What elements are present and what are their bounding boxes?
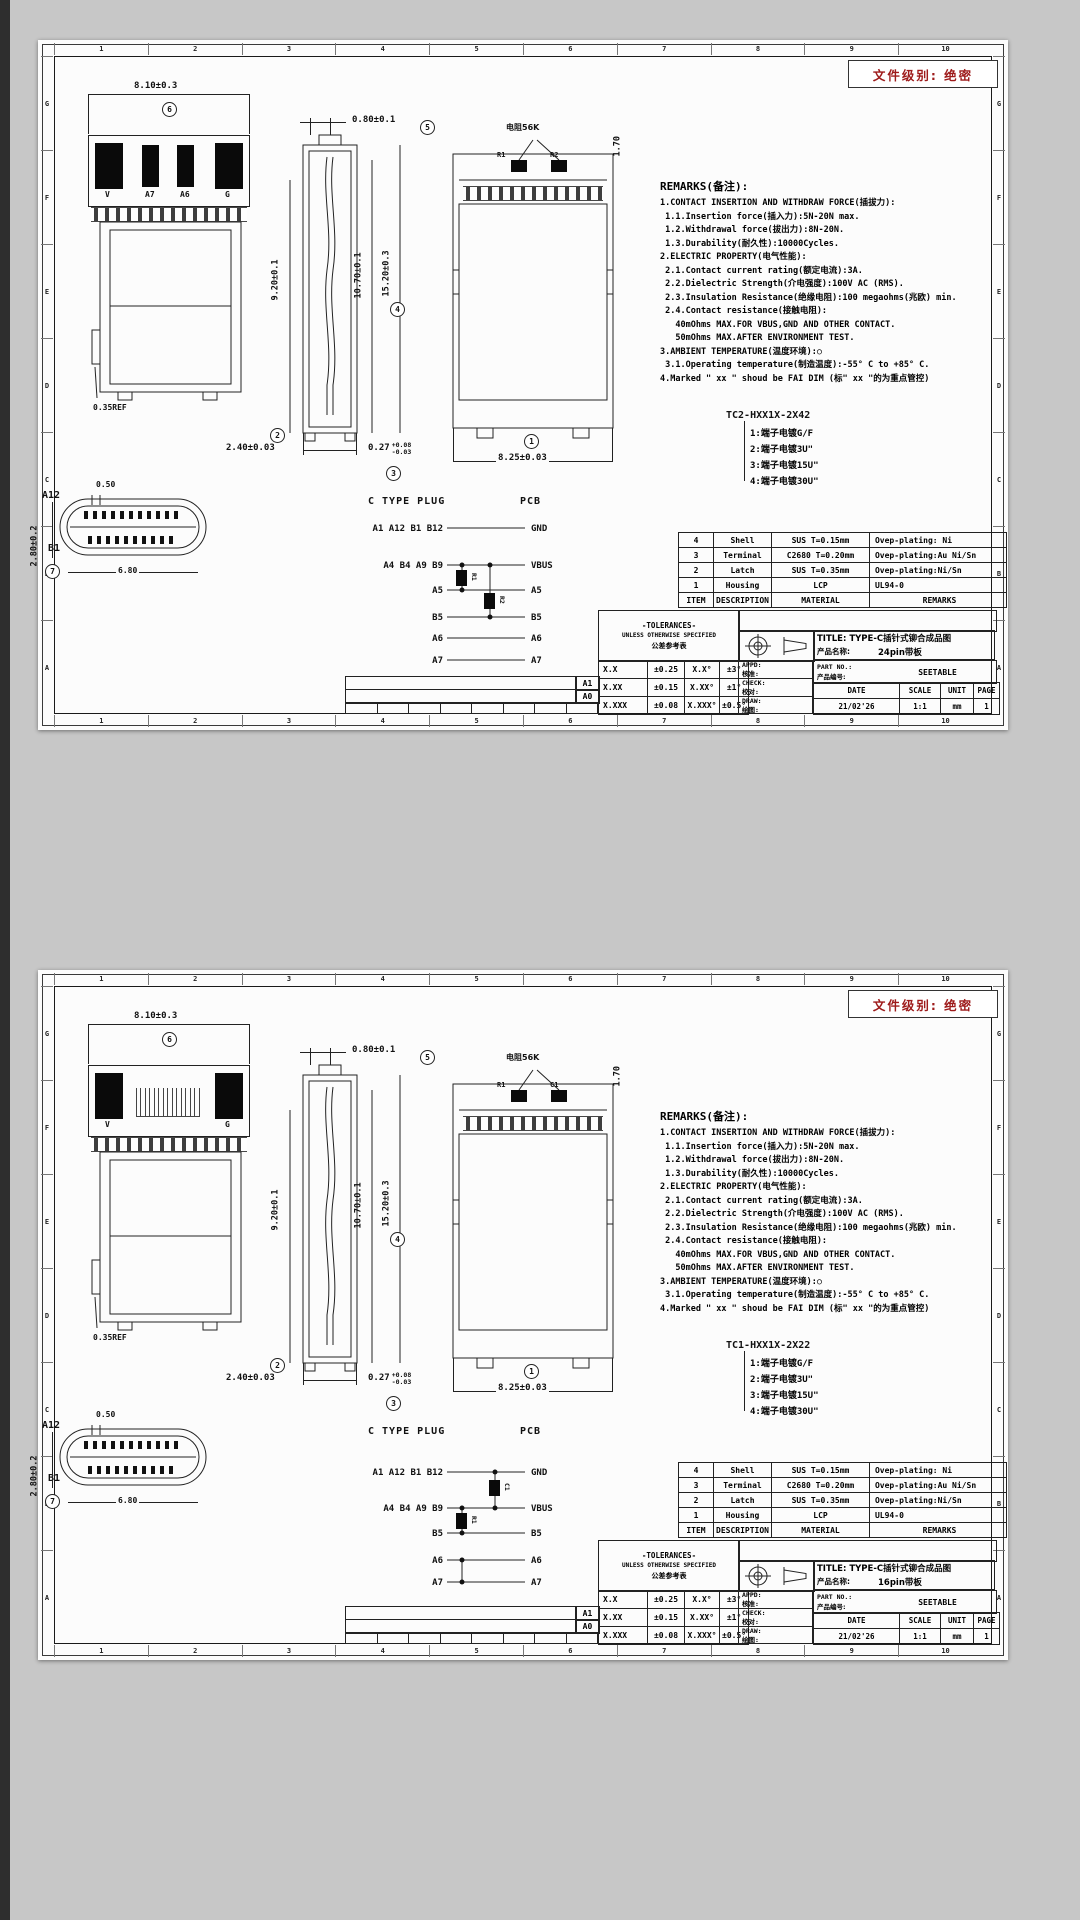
remark-line: 1.2.Withdrawal force(拔出力):8N-20N. <box>660 224 1000 238</box>
part-no-value: SEETABLE <box>879 668 996 677</box>
bom-cell: Ovep-plating:Ni/Sn <box>869 563 1006 578</box>
ext-line <box>612 1358 613 1392</box>
circuit-net: A6 <box>531 1556 542 1566</box>
ext-line <box>612 428 613 462</box>
front-mid-teeth <box>136 1088 200 1117</box>
bom-row: 3TerminalC2680 T=0.20mmOvep-plating:Au N… <box>679 1478 1007 1493</box>
tolerance-table: X.X±0.25X.X°±3° X.XX±0.15X.XX°±1° X.XXX±… <box>598 660 749 715</box>
bom-cell: Housing <box>714 578 772 593</box>
circuit-pin-group: A5 <box>432 586 443 596</box>
bom-cell: 2 <box>679 1493 714 1508</box>
circuit-pin-group: A1 A12 B1 B12 <box>373 524 443 534</box>
bom-header-cell: REMARKS <box>869 1523 1006 1538</box>
plating-option: 2:端子电镀3U" <box>750 1372 819 1388</box>
third-angle-projection-icon <box>742 1563 812 1589</box>
bom-header-cell: DESCRIPTION <box>714 1523 772 1538</box>
remark-line: 2.ELECTRIC PROPERTY(电气性能): <box>660 1181 1000 1195</box>
dsh-cell: DATE <box>814 1613 900 1629</box>
dim-width-8-10: 8.10±0.3 <box>134 1012 177 1022</box>
chip2-label: R2 <box>550 152 558 160</box>
dim-825: 8.25±0.03 <box>496 1384 549 1394</box>
grid-col-label: 2 <box>148 715 242 727</box>
remark-line: 4.Marked " xx " shoud be FAI DIM (标" xx … <box>660 1303 1000 1317</box>
dim-240: 2.40±0.03 <box>226 1374 275 1384</box>
bom-cell: SUS T=0.15mm <box>771 533 869 548</box>
grid-column-labels-top: 12345678910 <box>54 43 992 55</box>
bom-cell: 3 <box>679 548 714 563</box>
dim-280: 2.80±0.2 <box>31 526 40 567</box>
signature-label-cn: 绘图: <box>742 1636 812 1645</box>
bom-cell: LCP <box>771 1508 869 1523</box>
remark-line: 1.1.Insertion force(插入力):5N-20N max. <box>660 211 1000 225</box>
grid-row-labels-left: GFEDCBA <box>41 56 53 714</box>
signature-column: APPD:核准:CHECK:校对:DRAW:绘图: <box>738 1590 813 1644</box>
dim-line <box>300 122 346 123</box>
dim-050: 0.50 <box>96 481 115 490</box>
bom-row: 1HousingLCPUL94-0 <box>679 578 1007 593</box>
grid-col-label: 10 <box>898 973 992 985</box>
revision-a1: A1 <box>583 1609 593 1618</box>
pad-label: A6 <box>180 191 190 200</box>
plating-bracket <box>744 1351 745 1411</box>
circuit-net: VBUS <box>531 1504 553 1514</box>
circuit-diagram-16pin: A1 A12 B1 B12 A4 B4 A9 B9 B5 A6 A7 GND V… <box>363 1422 583 1612</box>
plating-option: 4:端子电镀30U" <box>750 1404 819 1420</box>
drawing-title: TITLE: TYPE-C插针式铆合成品图 <box>817 1562 991 1574</box>
ext-line <box>88 1024 89 1064</box>
dsh-cell: UNIT <box>941 683 974 699</box>
grid-row-label: A <box>41 620 53 714</box>
product-name-label: 产品名称: <box>817 1576 850 1588</box>
signature-column: APPD:核准:CHECK:校对:DRAW:绘图: <box>738 660 813 714</box>
balloon-7: 7 <box>45 1494 60 1509</box>
dim-line <box>52 502 53 558</box>
part-no-cell: PART NO.: 产品编号: SEETABLE <box>813 1590 997 1614</box>
part-no-label: PART NO.: <box>817 663 879 671</box>
front-pad-a7 <box>142 145 159 187</box>
balloon-1: 1 <box>524 1364 539 1379</box>
part-no-value: SEETABLE <box>879 1598 996 1607</box>
remark-line: 2.3.Insulation Resistance(绝缘电阻):100 mega… <box>660 292 1000 306</box>
remark-line: 1.2.Withdrawal force(拔出力):8N-20N. <box>660 1154 1000 1168</box>
grid-column-labels-top: 12345678910 <box>54 973 992 985</box>
grid-col-label: 4 <box>335 715 429 727</box>
grid-col-label: 1 <box>54 43 148 55</box>
title-top-strip <box>738 610 997 632</box>
plating-option: 3:端子电镀15U" <box>750 1388 819 1404</box>
dim-ref-035: 0.35REF <box>93 404 127 413</box>
product-name-value: 16pin带板 <box>878 1576 922 1588</box>
tolerances-title: -TOLERANCES- <box>642 621 696 630</box>
grid-col-label: 5 <box>429 973 523 985</box>
bom-row: 3TerminalC2680 T=0.20mmOvep-plating:Au N… <box>679 548 1007 563</box>
plating-bracket <box>744 421 745 481</box>
balloon-4: 4 <box>390 302 405 317</box>
grid-row-label: F <box>41 1080 53 1174</box>
circuit-pin-group: A6 <box>432 1556 443 1566</box>
tol-cell: X.XXX <box>599 1627 648 1645</box>
bom-table: 4ShellSUS T=0.15mmOvep-plating: Ni 3Term… <box>678 532 1007 608</box>
drawing-title: TITLE: TYPE-C插针式铆合成品图 <box>817 632 991 644</box>
balloon-5: 5 <box>420 120 435 135</box>
dim-280: 2.80±0.2 <box>31 1456 40 1497</box>
bom-row: 2LatchSUS T=0.35mmOvep-plating:Ni/Sn <box>679 1493 1007 1508</box>
revision-header-cells <box>345 702 598 714</box>
dim-080: 0.80±0.1 <box>352 116 395 126</box>
grid-col-label: 6 <box>523 43 617 55</box>
remark-line: 50mOhms MAX.AFTER ENVIRONMENT TEST. <box>660 332 1000 346</box>
grid-col-label: 3 <box>242 973 336 985</box>
circuit-net: A6 <box>531 634 542 644</box>
bom-cell: SUS T=0.15mm <box>771 1463 869 1478</box>
pad-label: V <box>105 1121 110 1130</box>
bom-header-row: ITEMDESCRIPTIONMATERIALREMARKS <box>679 593 1007 608</box>
part-no-label-cn: 产品编号: <box>817 671 879 681</box>
tolerances-subtitle-cn: 公差参考表 <box>652 641 687 651</box>
bom-row: 2LatchSUS T=0.35mmOvep-plating:Ni/Sn <box>679 563 1007 578</box>
tol-cell: ±0.08 <box>648 697 685 715</box>
balloon-6: 6 <box>162 102 177 117</box>
bom-cell: Ovep-plating:Au Ni/Sn <box>869 548 1006 563</box>
dsh-row: DATESCALEUNITPAGE <box>814 683 1000 699</box>
grid-col-label: 6 <box>523 973 617 985</box>
bom-cell: Latch <box>714 1493 772 1508</box>
bom-header-cell: REMARKS <box>869 593 1006 608</box>
remark-line: 2.1.Contact current rating(额定电流):3A. <box>660 265 1000 279</box>
remark-line: 2.2.Dielectric Strength(介电强度):100V AC (R… <box>660 278 1000 292</box>
remark-line: 40mOhms MAX.FOR VBUS,GND AND OTHER CONTA… <box>660 319 1000 333</box>
front-pad-v <box>95 1073 123 1119</box>
dsh-row: DATESCALEUNITPAGE <box>814 1613 1000 1629</box>
date-scale-values: 21/02'261:1mm1 <box>813 698 1000 715</box>
resistor-callout: 电阻56K <box>506 124 539 133</box>
circuit-net: B5 <box>531 1529 542 1539</box>
grid-row-labels-left: GFEDCBA <box>41 986 53 1644</box>
tol-cell: ±0.25 <box>648 1591 685 1609</box>
dim-027-tol-dn: -0.03 <box>392 449 412 456</box>
signature-label-cn: 绘图: <box>742 706 812 715</box>
grid-col-label: 7 <box>617 1645 711 1657</box>
revision-header-cells <box>345 1632 598 1644</box>
tolerance-header-box: -TOLERANCES- UNLESS OTHERWISE SPECIFIED … <box>598 1540 740 1592</box>
signature-row: DRAW:绘图: <box>739 1627 812 1645</box>
dsv-cell: 1 <box>974 1629 1000 1645</box>
remark-line: 3.AMBIENT TEMPERATURE(温度环境):○ <box>660 1276 1000 1290</box>
dim-170: 1.70 <box>614 136 623 156</box>
circuit-net: GND <box>531 524 548 534</box>
circuit-pin-group: A1 A12 B1 B12 <box>373 1468 443 1478</box>
bom-cell: C2680 T=0.20mm <box>771 1478 869 1493</box>
remarks-title: REMARKS(备注): <box>660 1108 1000 1124</box>
dsv-row: 21/02'261:1mm1 <box>814 699 1000 715</box>
pad-label: G <box>225 1121 230 1130</box>
part-no-label-cn: 产品编号: <box>817 1601 879 1611</box>
dim-027-value: 0.27 <box>368 444 390 454</box>
dim-680: 6.80 <box>116 1497 139 1506</box>
grid-col-label: 6 <box>523 1645 617 1657</box>
signature-label-en: CHECK: <box>742 679 812 688</box>
classification-label: 文件级别: 绝密 <box>873 65 973 84</box>
grid-row-label: C <box>993 432 1005 526</box>
title-cell: TITLE: TYPE-C插针式铆合成品图 产品名称: 16pin带板 <box>813 1560 995 1590</box>
grid-row-label: D <box>41 1268 53 1362</box>
dsv-cell: 1 <box>974 699 1000 715</box>
projection-symbol-cell <box>738 1560 815 1592</box>
grid-row-label: D <box>41 338 53 432</box>
dsh-cell: PAGE <box>974 683 1000 699</box>
dim-1070: 10.70±0.1 <box>355 252 364 298</box>
circuit-net: B5 <box>531 613 542 623</box>
dim-1070: 10.70±0.1 <box>355 1182 364 1228</box>
front-pad-a6 <box>177 145 194 187</box>
tolerances-title: -TOLERANCES- <box>642 1551 696 1560</box>
tol-cell: X.X° <box>685 1591 720 1609</box>
dim-027-tol-dn: -0.03 <box>392 1379 412 1386</box>
revision-a0: A0 <box>583 692 593 701</box>
tol-cell: X.XXX <box>599 697 648 715</box>
revision-strip <box>345 676 577 704</box>
circuit-net: VBUS <box>531 561 553 571</box>
tolerances-subtitle-cn: 公差参考表 <box>652 1571 687 1581</box>
dim-1520: 15.20±0.3 <box>383 1180 392 1226</box>
grid-row-label: C <box>993 1362 1005 1456</box>
bom-cell: Shell <box>714 533 772 548</box>
bom-cell: Ovep-plating:Au Ni/Sn <box>869 1478 1006 1493</box>
signature-label-cn: 校对: <box>742 1618 812 1627</box>
circuit-comp2-label: R1 <box>470 1516 478 1524</box>
dsv-row: 21/02'261:1mm1 <box>814 1629 1000 1645</box>
grid-col-label: 5 <box>429 43 523 55</box>
pcb-teeth <box>463 186 603 201</box>
grid-col-label: 1 <box>54 715 148 727</box>
dim-027: 0.27+0.08-0.03 <box>368 442 411 456</box>
dim-240: 2.40±0.03 <box>226 444 275 454</box>
bom-cell: SUS T=0.35mm <box>771 563 869 578</box>
grid-col-label: 5 <box>429 1645 523 1657</box>
tol-cell: ±0.08 <box>648 1627 685 1645</box>
tolerance-header-box: -TOLERANCES- UNLESS OTHERWISE SPECIFIED … <box>598 610 740 662</box>
dim-line <box>303 1380 357 1381</box>
bom-cell: Housing <box>714 1508 772 1523</box>
bom-table: 4ShellSUS T=0.15mmOvep-plating: Ni 3Term… <box>678 1462 1007 1538</box>
screen-edge-strip <box>0 0 10 1920</box>
third-angle-projection-icon <box>742 633 812 659</box>
circuit-pin-group: B5 <box>432 1529 443 1539</box>
circuit-comp2-label: R2 <box>498 596 506 604</box>
dsh-cell: UNIT <box>941 1613 974 1629</box>
classification-box: 文件级别: 绝密 <box>848 990 998 1018</box>
remark-line: 3.1.Operating temperature(制造温度):-55° C t… <box>660 359 1000 373</box>
remark-line: 40mOhms MAX.FOR VBUS,GND AND OTHER CONTA… <box>660 1249 1000 1263</box>
balloon-6: 6 <box>162 1032 177 1047</box>
bom-cell: LCP <box>771 578 869 593</box>
remark-line: 1.1.Insertion force(插入力):5N-20N max. <box>660 1141 1000 1155</box>
tol-cell: X.XX° <box>685 679 720 697</box>
grid-col-label: 2 <box>148 973 242 985</box>
tol-cell: X.XX <box>599 1609 648 1627</box>
tol-cell: X.XXX° <box>685 697 720 715</box>
title-cell: TITLE: TYPE-C插针式铆合成品图 产品名称: 24pin带板 <box>813 630 995 660</box>
tol-cell: X.X <box>599 661 648 679</box>
signature-row: CHECK:校对: <box>739 1609 812 1627</box>
tolerance-row: X.X±0.25X.X°±3° <box>599 661 749 679</box>
dim-680: 6.80 <box>116 567 139 576</box>
circuit-pin-group: A4 B4 A9 B9 <box>383 561 443 571</box>
circuit-net: A7 <box>531 1578 542 1588</box>
dsh-cell: PAGE <box>974 1613 1000 1629</box>
revision-divider <box>346 689 576 690</box>
grid-column-labels-bottom: 12345678910 <box>54 1645 992 1657</box>
grid-col-label: 7 <box>617 43 711 55</box>
remarks-title: REMARKS(备注): <box>660 178 1000 194</box>
chip1-label: R1 <box>497 1082 505 1090</box>
circuit-pin-group: A7 <box>432 656 443 666</box>
bom-header-row: ITEMDESCRIPTIONMATERIALREMARKS <box>679 1523 1007 1538</box>
dim-027: 0.27+0.08-0.03 <box>368 1372 411 1386</box>
bom-cell: C2680 T=0.20mm <box>771 548 869 563</box>
grid-row-label: A <box>41 1550 53 1644</box>
bom-cell: Terminal <box>714 1478 772 1493</box>
pcb-teeth <box>463 1116 603 1131</box>
grid-col-label: 4 <box>335 973 429 985</box>
signature-row: APPD:核准: <box>739 1591 812 1609</box>
grid-col-label: 8 <box>711 973 805 985</box>
ext-line <box>88 94 89 134</box>
dim-width-8-10: 8.10±0.3 <box>134 82 177 92</box>
signature-label-en: APPD: <box>742 1591 812 1600</box>
ext-line <box>249 94 250 134</box>
bom-header-cell: DESCRIPTION <box>714 593 772 608</box>
plating-options: 1:端子电镀G/F2:端子电镀3U"3:端子电镀15U"4:端子电镀30U" <box>750 1356 819 1420</box>
signature-label-en: CHECK: <box>742 1609 812 1618</box>
dsv-cell: 1:1 <box>900 1629 941 1645</box>
grid-col-label: 7 <box>617 715 711 727</box>
pad-label: A7 <box>145 191 155 200</box>
ext-line <box>310 1048 311 1065</box>
circuit-comp1-label: C1 <box>503 1483 511 1491</box>
balloon-3: 3 <box>386 1396 401 1411</box>
signature-row: DRAW:绘图: <box>739 697 812 715</box>
remark-line: 2.2.Dielectric Strength(介电强度):100V AC (R… <box>660 1208 1000 1222</box>
remarks-block: REMARKS(备注): 1.CONTACT INSERTION AND WIT… <box>660 1108 1000 1316</box>
remark-line: 2.ELECTRIC PROPERTY(电气性能): <box>660 251 1000 265</box>
grid-col-label: 4 <box>335 1645 429 1657</box>
bom-cell: 1 <box>679 578 714 593</box>
balloon-7: 7 <box>45 564 60 579</box>
ext-line <box>453 428 454 462</box>
grid-column-labels-bottom: 12345678910 <box>54 715 992 727</box>
chip2-label: C1 <box>550 1082 558 1090</box>
remark-line: 4.Marked " xx " shoud be FAI DIM (标" xx … <box>660 373 1000 387</box>
balloon-5: 5 <box>420 1050 435 1065</box>
plating-option: 3:端子电镀15U" <box>750 458 819 474</box>
date-scale-header: DATESCALEUNITPAGE <box>813 1612 1000 1629</box>
tol-cell: ±0.15 <box>648 1609 685 1627</box>
revision-a1: A1 <box>583 679 593 688</box>
plating-option: 4:端子电镀30U" <box>750 474 819 490</box>
signature-row: APPD:核准: <box>739 661 812 679</box>
grid-col-label: 4 <box>335 43 429 55</box>
grid-col-label: 9 <box>804 1645 898 1657</box>
ext-line <box>310 118 311 135</box>
grid-col-label: 9 <box>804 973 898 985</box>
balloon-2: 2 <box>270 1358 285 1373</box>
drawing-sheet: 12345678910 12345678910 GFEDCBA GFEDCBA … <box>38 40 1008 730</box>
grid-row-label: E <box>41 1174 53 1268</box>
dsv-cell: 1:1 <box>900 699 941 715</box>
ext-line <box>453 1358 454 1392</box>
bom-cell: 3 <box>679 1478 714 1493</box>
signature-row: CHECK:校对: <box>739 679 812 697</box>
remark-line: 1.CONTACT INSERTION AND WITHDRAW FORCE(插… <box>660 197 1000 211</box>
classification-label: 文件级别: 绝密 <box>873 995 973 1014</box>
remarks-lines: 1.CONTACT INSERTION AND WITHDRAW FORCE(插… <box>660 197 1000 386</box>
signature-label-cn: 核准: <box>742 670 812 679</box>
signature-label-cn: 核准: <box>742 1600 812 1609</box>
front-pad-v <box>95 143 123 189</box>
balloon-1: 1 <box>524 434 539 449</box>
grid-col-label: 2 <box>148 43 242 55</box>
bom-cell: Terminal <box>714 548 772 563</box>
dsv-cell: mm <box>941 1629 974 1645</box>
grid-col-label: 3 <box>242 715 336 727</box>
grid-row-label: F <box>41 150 53 244</box>
dim-170: 1.70 <box>614 1066 623 1086</box>
circuit-pin-group: B5 <box>432 613 443 623</box>
drawing-sheet: 12345678910 12345678910 GFEDCBA GFEDCBA … <box>38 970 1008 1660</box>
ext-line <box>330 1048 331 1065</box>
dim-line <box>303 450 357 451</box>
tolerances-subtitle: UNLESS OTHERWISE SPECIFIED <box>622 632 716 639</box>
remark-line: 1.3.Durability(耐久性):10000Cycles. <box>660 238 1000 252</box>
bom-row: 4ShellSUS T=0.15mmOvep-plating: Ni <box>679 533 1007 548</box>
tolerance-row: X.XXX±0.08X.XXX°±0.5° <box>599 1627 749 1645</box>
dim-825: 8.25±0.03 <box>496 454 549 464</box>
plating-options: 1:端子电镀G/F2:端子电镀3U"3:端子电镀15U"4:端子电镀30U" <box>750 426 819 490</box>
grid-col-label: 10 <box>898 43 992 55</box>
tol-cell: ±0.15 <box>648 679 685 697</box>
grid-col-label: 8 <box>711 1645 805 1657</box>
date-scale-values: 21/02'261:1mm1 <box>813 1628 1000 1645</box>
bom-cell: 1 <box>679 1508 714 1523</box>
remark-line: 1.CONTACT INSERTION AND WITHDRAW FORCE(插… <box>660 1127 1000 1141</box>
pad-label: G <box>225 191 230 200</box>
circuit-comp1-label: R1 <box>470 573 478 581</box>
plug-face-drawing <box>58 1425 208 1491</box>
front-teeth <box>91 1137 247 1152</box>
tolerance-row: X.XX±0.15X.XX°±1° <box>599 1609 749 1627</box>
part-no-cell: PART NO.: 产品编号: SEETABLE <box>813 660 997 684</box>
grid-col-label: 5 <box>429 715 523 727</box>
tolerances-subtitle: UNLESS OTHERWISE SPECIFIED <box>622 1562 716 1569</box>
plating-option: 1:端子电镀G/F <box>750 426 819 442</box>
tolerance-table: X.X±0.25X.X°±3° X.XX±0.15X.XX°±1° X.XXX±… <box>598 1590 749 1645</box>
revision-strip <box>345 1606 577 1634</box>
signature-label-cn: 校对: <box>742 688 812 697</box>
circuit-pin-group: A4 B4 A9 B9 <box>383 1504 443 1514</box>
tolerance-row: X.X±0.25X.X°±3° <box>599 1591 749 1609</box>
bom-cell: Ovep-plating: Ni <box>869 533 1006 548</box>
dsh-cell: SCALE <box>900 683 941 699</box>
title-top-strip <box>738 1540 997 1562</box>
ext-line <box>249 1024 250 1064</box>
grid-col-label: 1 <box>54 973 148 985</box>
part-no-label: PART NO.: <box>817 1593 879 1601</box>
circuit-pin-group: A6 <box>432 634 443 644</box>
bom-cell: UL94-0 <box>869 1508 1006 1523</box>
bom-cell: 2 <box>679 563 714 578</box>
plating-option: 1:端子电镀G/F <box>750 1356 819 1372</box>
